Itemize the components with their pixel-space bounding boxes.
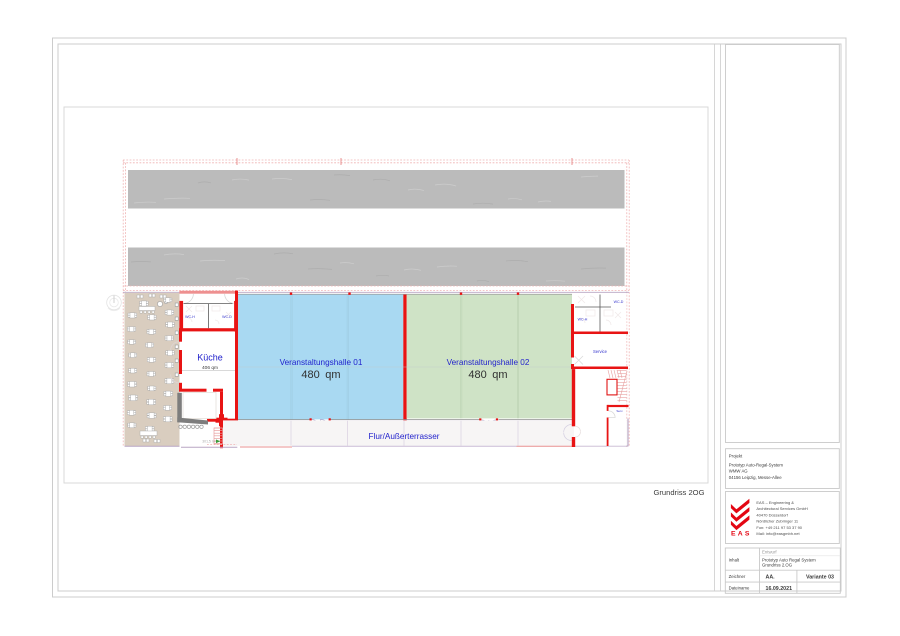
svg-text:EAS – Engineering &: EAS – Engineering & [756,500,794,505]
svg-text:Grundriss 2OG: Grundriss 2OG [653,488,704,497]
svg-text:Projekt: Projekt [729,453,743,458]
svg-text:WMW AG: WMW AG [729,469,749,474]
svg-text:EAS: EAS [731,531,752,538]
svg-text:Prototyp Auto-Regal-System: Prototyp Auto-Regal-System [729,462,784,467]
svg-text:40470 Düsseldorf: 40470 Düsseldorf [756,512,788,517]
svg-text:AA.: AA. [766,575,776,581]
svg-text:Inhalt: Inhalt [729,558,740,563]
svg-text:Mail: info@easgmbh.net: Mail: info@easgmbh.net [756,531,800,536]
svg-text:Zeichner: Zeichner [729,574,746,579]
svg-text:Nördlicher Zubringer 11: Nördlicher Zubringer 11 [756,519,798,524]
svg-text:Veranstaltungshalle 02: Veranstaltungshalle 02 [447,358,530,367]
svg-text:Variante 03: Variante 03 [806,575,834,581]
svg-text:Fon: +49 211 97 53 37 90: Fon: +49 211 97 53 37 90 [756,525,802,530]
svg-text:WC-H: WC-H [578,318,588,322]
svg-text:301,5 m²: 301,5 m² [202,439,216,443]
svg-text:480 qm: 480 qm [468,369,507,381]
svg-text:16.09.2021: 16.09.2021 [766,586,793,592]
svg-text:Service: Service [593,349,608,354]
svg-text:Architectural Services GmbH: Architectural Services GmbH [756,506,807,511]
svg-text:WC-D: WC-D [222,315,232,319]
svg-text:Entwurf: Entwurf [762,550,777,555]
svg-text:04156 Leipzig, Messe-Allee: 04156 Leipzig, Messe-Allee [729,475,782,480]
svg-text:Küche: Küche [197,353,223,363]
svg-text:Dateiname: Dateiname [729,586,750,591]
svg-text:Flur/Außerterrasser: Flur/Außerterrasser [369,432,440,441]
svg-text:480 qm: 480 qm [301,369,340,381]
svg-text:Grundriss 2.OG: Grundriss 2.OG [762,563,793,568]
svg-text:WC-D: WC-D [614,300,624,304]
svg-text:WC-H: WC-H [185,315,195,319]
svg-text:Veranstaltungshalle 01: Veranstaltungshalle 01 [280,358,363,367]
svg-text:406 qm: 406 qm [202,365,218,371]
svg-text:Serv: Serv [616,409,623,413]
